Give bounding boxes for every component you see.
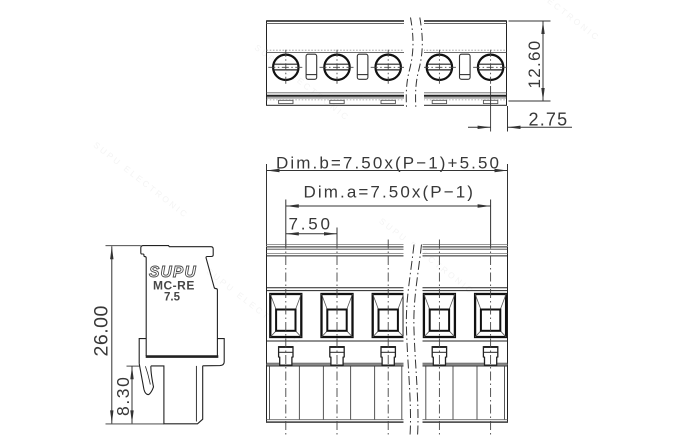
svg-text:2.75: 2.75 <box>529 110 569 130</box>
svg-text:MC-RE: MC-RE <box>153 279 195 293</box>
svg-text:7.5: 7.5 <box>164 292 181 304</box>
svg-text:Dim.b=7.50x(P−1)+5.50: Dim.b=7.50x(P−1)+5.50 <box>276 154 501 173</box>
svg-text:8.30: 8.30 <box>113 376 133 416</box>
svg-text:26.00: 26.00 <box>91 305 113 356</box>
svg-text:Dim.a=7.50x(P−1): Dim.a=7.50x(P−1) <box>304 183 476 202</box>
svg-text:12.60: 12.60 <box>525 39 544 88</box>
svg-text:SUPU ELECTRONIC: SUPU ELECTRONIC <box>92 140 191 221</box>
svg-text:SUPU ELECTRONIC: SUPU ELECTRONIC <box>503 0 602 43</box>
svg-text:7.50: 7.50 <box>289 215 333 234</box>
